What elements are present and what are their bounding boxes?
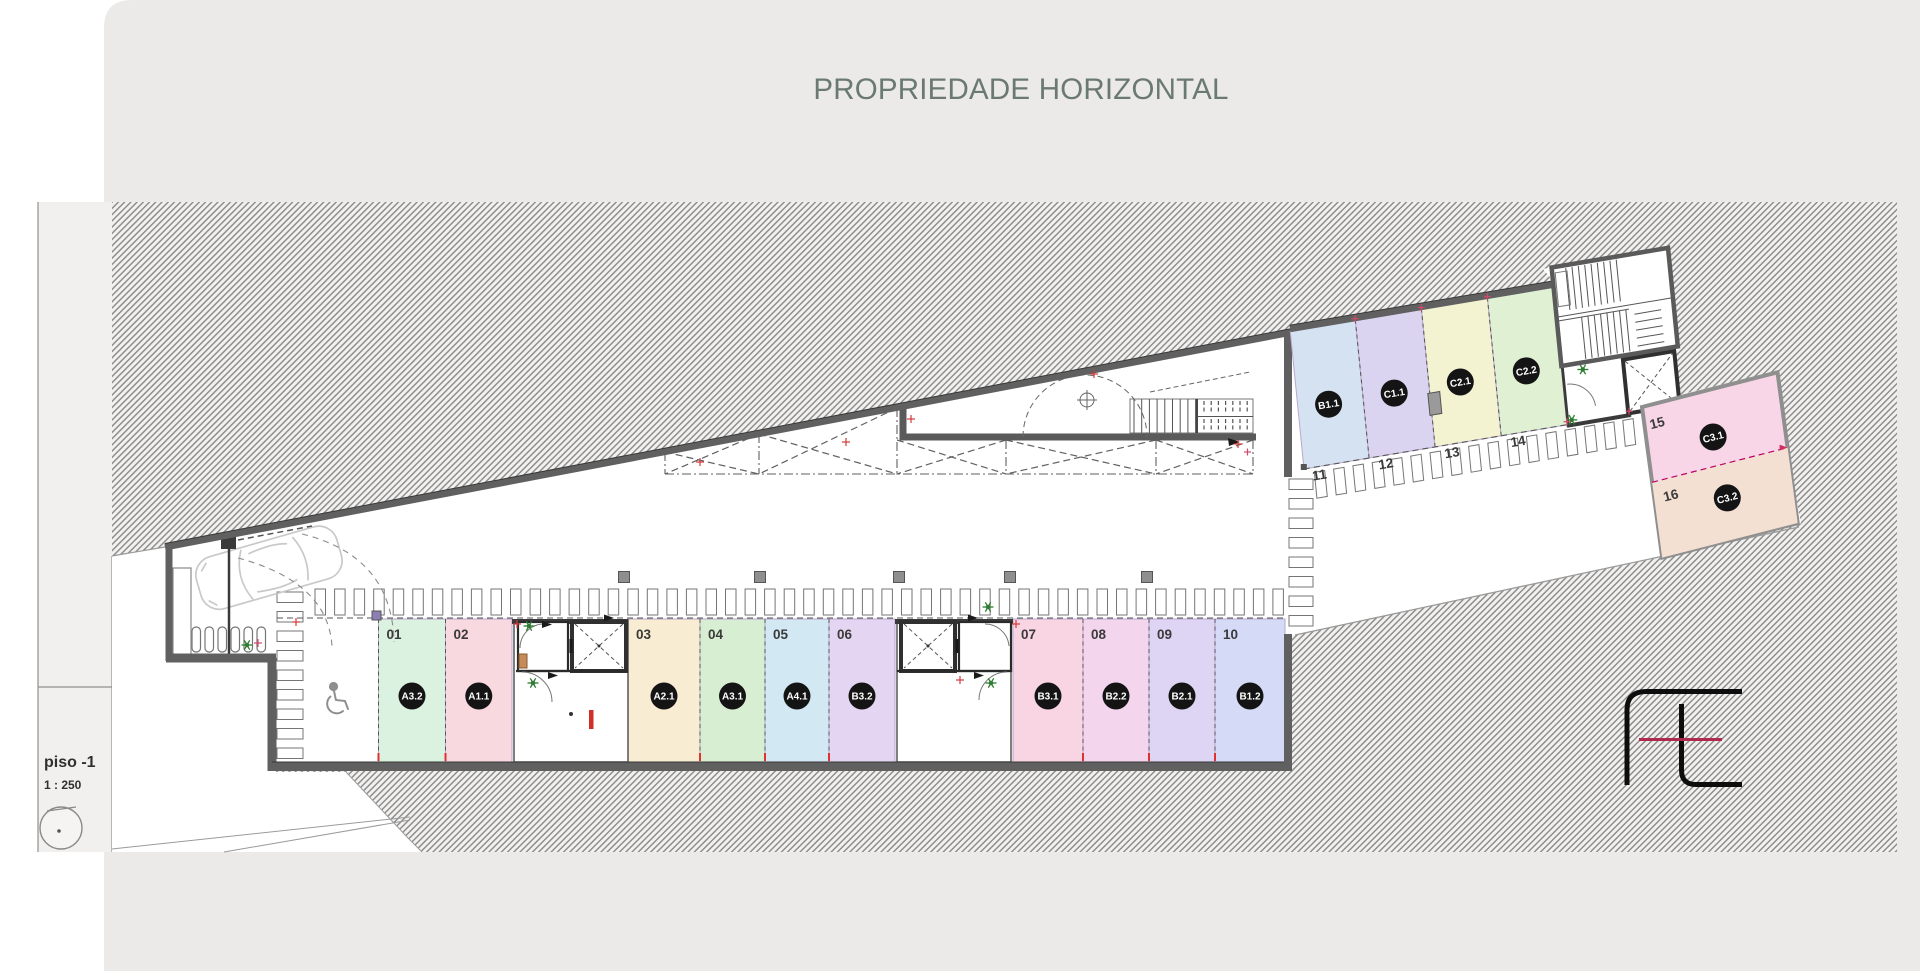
- svg-text:A3.1: A3.1: [722, 692, 744, 703]
- svg-text:05: 05: [773, 627, 789, 642]
- svg-text:A1.1: A1.1: [468, 692, 490, 703]
- svg-text:1 : 250: 1 : 250: [44, 778, 82, 792]
- svg-text:10: 10: [1223, 627, 1238, 642]
- svg-text:B2.2: B2.2: [1105, 692, 1127, 703]
- svg-text:07: 07: [1021, 627, 1036, 642]
- svg-text:01: 01: [387, 627, 403, 642]
- svg-text:B1.2: B1.2: [1239, 692, 1261, 703]
- svg-text:11: 11: [1311, 466, 1328, 483]
- svg-text:A3.2: A3.2: [401, 692, 423, 703]
- svg-text:08: 08: [1091, 627, 1107, 642]
- svg-text:A4.1: A4.1: [786, 692, 808, 703]
- svg-text:02: 02: [454, 627, 469, 642]
- svg-text:09: 09: [1157, 627, 1172, 642]
- svg-text:B3.1: B3.1: [1037, 692, 1059, 703]
- svg-text:A2.1: A2.1: [653, 692, 675, 703]
- svg-text:04: 04: [708, 627, 724, 642]
- svg-text:12: 12: [1377, 455, 1394, 472]
- svg-text:B2.1: B2.1: [1171, 692, 1193, 703]
- svg-text:13: 13: [1443, 444, 1461, 461]
- svg-text:06: 06: [837, 627, 853, 642]
- svg-text:PROPRIEDADE HORIZONTAL: PROPRIEDADE HORIZONTAL: [813, 73, 1228, 106]
- svg-text:14: 14: [1509, 433, 1527, 450]
- svg-text:piso -1: piso -1: [44, 754, 96, 771]
- svg-text:B3.2: B3.2: [851, 692, 873, 703]
- svg-text:03: 03: [636, 627, 652, 642]
